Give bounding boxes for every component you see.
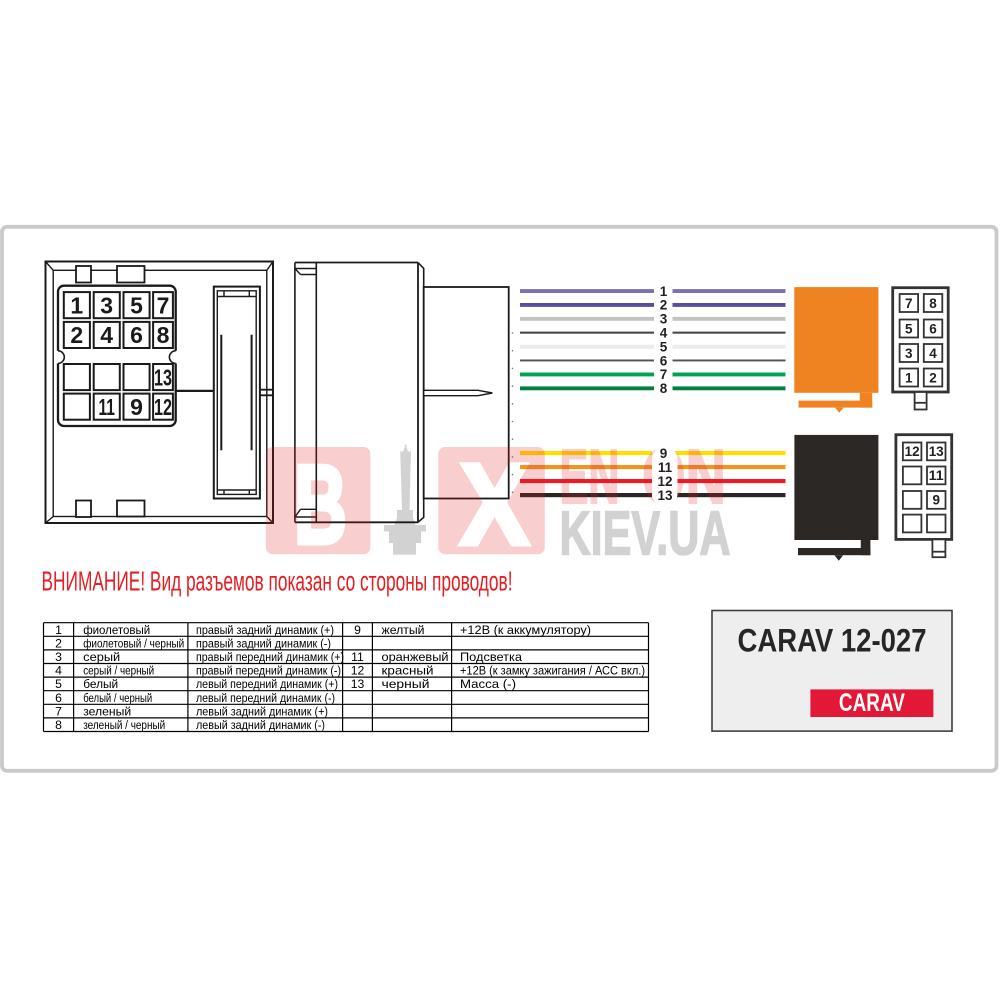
svg-text:3: 3 [55,650,62,664]
svg-text:7: 7 [157,292,170,318]
svg-text:9: 9 [932,493,940,508]
svg-text:5: 5 [905,321,913,336]
svg-text:зеленый / черный: зеленый / черный [83,718,165,732]
svg-text:белый: белый [83,677,118,691]
svg-text:8: 8 [929,296,937,311]
svg-text:правый задний динамик (-): правый задний динамик (-) [196,636,331,650]
svg-text:левый передний динамик (-): левый передний динамик (-) [196,691,335,705]
svg-text:6: 6 [130,322,143,348]
svg-text:8: 8 [660,381,668,396]
svg-text:8: 8 [157,322,170,348]
svg-text:13: 13 [657,488,673,503]
svg-text:9: 9 [130,394,143,420]
svg-text:11: 11 [351,650,364,664]
svg-text:4: 4 [929,346,937,361]
svg-text:ВНИМАНИЕ! Вид разъемов показан: ВНИМАНИЕ! Вид разъемов показан со сторон… [42,566,513,597]
svg-text:1: 1 [660,284,668,299]
svg-text:CARAV: CARAV [839,689,905,717]
svg-text:CARAV 12-027: CARAV 12-027 [738,623,927,659]
svg-text:9: 9 [354,623,361,637]
svg-text:черный: черный [382,677,430,691]
svg-text:желтый: желтый [382,623,425,637]
svg-text:5: 5 [660,339,668,354]
svg-text:12: 12 [351,664,365,678]
svg-text:1: 1 [905,370,913,385]
svg-text:6: 6 [55,691,62,705]
svg-text:7: 7 [905,296,913,311]
svg-text:5: 5 [55,677,62,691]
svg-text:левый задний динамик (+): левый задний динамик (+) [196,704,328,718]
svg-text:правый задний динамик (+): правый задний динамик (+) [196,623,334,637]
svg-text:правый передний динамик (+): правый передний динамик (+) [196,650,344,664]
svg-text:6: 6 [660,353,668,368]
svg-text:KIEV.UA: KIEV.UA [560,500,731,569]
svg-text:+12В (к аккумулятору): +12В (к аккумулятору) [460,623,591,637]
svg-text:12: 12 [657,474,672,489]
svg-text:серый / черный: серый / черный [83,664,154,678]
svg-text:2: 2 [660,298,668,313]
svg-text:правый передний динамик (-): правый передний динамик (-) [196,664,341,678]
svg-text:красный: красный [382,664,434,678]
svg-text:3: 3 [905,346,913,361]
svg-text:Подсветка: Подсветка [460,650,522,664]
svg-text:11: 11 [98,394,115,420]
svg-text:оранжевый: оранжевый [382,650,449,664]
svg-text:12: 12 [154,394,172,420]
svg-text:2: 2 [70,322,83,348]
svg-text:9: 9 [660,446,668,461]
svg-text:зеленый: зеленый [83,704,131,718]
svg-text:левый передний динамик (+): левый передний динамик (+) [196,677,338,691]
svg-text:4: 4 [660,326,668,341]
svg-text:2: 2 [55,636,62,650]
svg-text:фиолетовый: фиолетовый [83,623,150,637]
svg-text:6: 6 [929,321,937,336]
svg-text:4: 4 [100,322,113,348]
svg-text:11: 11 [929,468,945,483]
svg-text:фиолетовый / черный: фиолетовый / черный [83,636,184,650]
svg-text:4: 4 [55,664,62,678]
svg-text:3: 3 [660,312,668,327]
svg-text:13: 13 [351,677,365,691]
svg-text:12: 12 [905,444,920,459]
svg-text:7: 7 [55,704,62,718]
svg-text:1: 1 [70,292,83,318]
svg-text:2: 2 [929,370,937,385]
svg-text:Масса (-): Масса (-) [460,677,516,691]
svg-text:11: 11 [658,460,673,475]
svg-text:серый: серый [83,650,120,664]
svg-text:левый задний динамик (-): левый задний динамик (-) [196,718,325,732]
svg-text:13: 13 [929,444,944,459]
svg-text:+12В (к замку зажигания / АСС: +12В (к замку зажигания / АСС вкл.) [460,664,645,678]
svg-text:белый / черный: белый / черный [83,691,152,705]
svg-text:5: 5 [130,292,143,318]
svg-text:3: 3 [100,292,113,318]
svg-text:8: 8 [55,718,62,732]
svg-text:1: 1 [55,623,62,637]
svg-text:7: 7 [660,367,668,382]
svg-text:13: 13 [154,364,172,390]
